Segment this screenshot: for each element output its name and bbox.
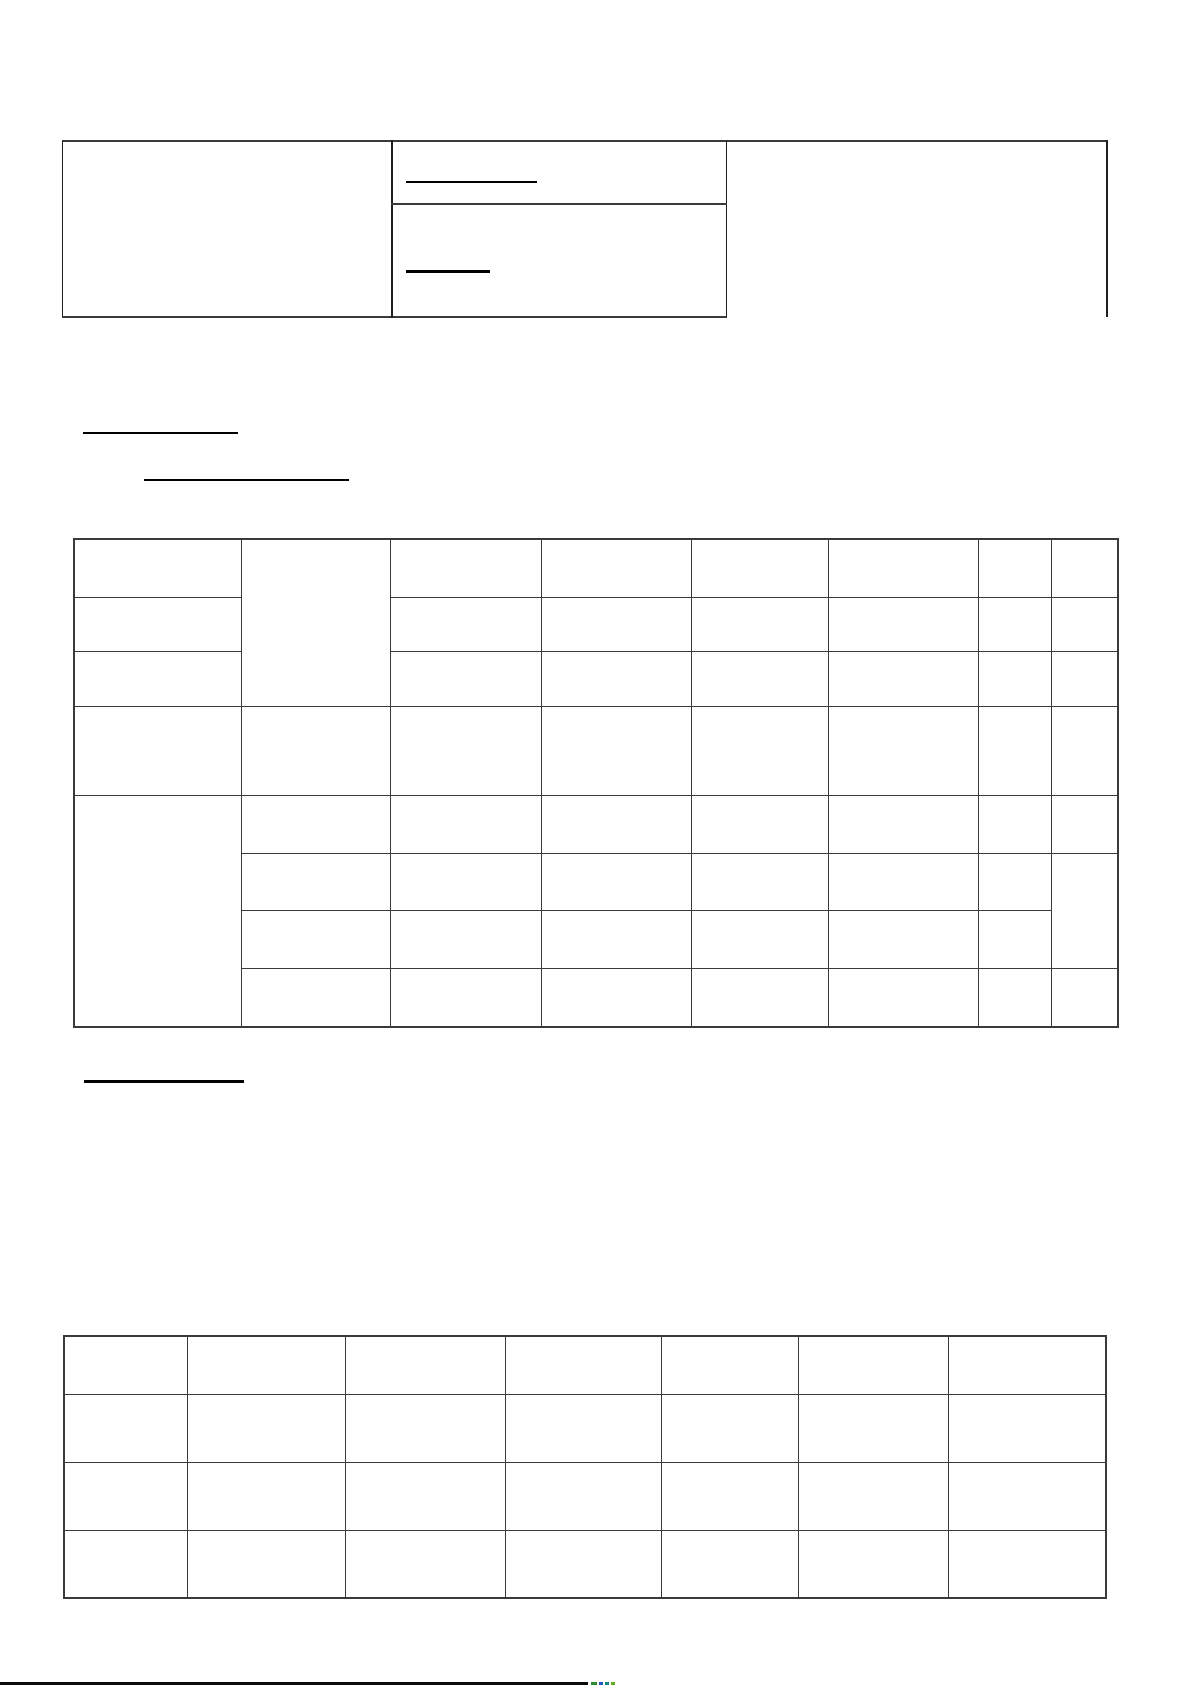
top-form-top-border-extension xyxy=(727,140,1106,142)
blank-underline xyxy=(144,479,349,481)
table-cell xyxy=(828,853,978,910)
table-cell xyxy=(390,910,541,968)
top-form-row-divider xyxy=(391,203,727,205)
table-cell xyxy=(345,1530,505,1598)
top-form-right-border xyxy=(1106,140,1108,317)
table-cell xyxy=(978,651,1051,706)
table-cell xyxy=(661,1530,798,1598)
table-cell xyxy=(978,706,1051,795)
table-cell xyxy=(541,706,691,795)
table-cell xyxy=(948,1336,1106,1394)
table-cell xyxy=(241,853,390,910)
table-cell xyxy=(390,795,541,853)
table-cell xyxy=(187,1530,345,1598)
table-cell xyxy=(74,795,241,1027)
table-cell xyxy=(541,853,691,910)
table-cell xyxy=(541,910,691,968)
table-cell xyxy=(798,1394,948,1462)
table-cell xyxy=(64,1336,187,1394)
table-cell xyxy=(978,597,1051,651)
table-cell xyxy=(64,1394,187,1462)
table-cell xyxy=(828,539,978,597)
table-cell xyxy=(978,539,1051,597)
table-cell xyxy=(74,539,241,597)
table-cell xyxy=(74,706,241,795)
table-cell xyxy=(978,910,1051,968)
table-cell xyxy=(345,1394,505,1462)
table-cell xyxy=(74,651,241,706)
table-cell xyxy=(390,651,541,706)
table-cell xyxy=(505,1394,661,1462)
table-cell xyxy=(64,1530,187,1598)
document-page xyxy=(0,0,1191,1685)
table-cell xyxy=(390,539,541,597)
table-cell xyxy=(798,1462,948,1530)
table-cell xyxy=(948,1462,1106,1530)
table-cell xyxy=(948,1530,1106,1598)
table-cell xyxy=(1051,539,1118,597)
table-cell xyxy=(691,853,828,910)
table-cell xyxy=(241,968,390,1027)
table-cell xyxy=(541,651,691,706)
top-form-column-divider xyxy=(391,140,393,318)
table-cell xyxy=(390,968,541,1027)
table-cell xyxy=(691,651,828,706)
table-cell xyxy=(241,706,390,795)
table-cell xyxy=(345,1336,505,1394)
table-cell xyxy=(828,968,978,1027)
table-cell xyxy=(1051,968,1118,1027)
table-cell xyxy=(828,706,978,795)
blank-underline xyxy=(406,181,537,183)
table-cell xyxy=(978,968,1051,1027)
table-cell xyxy=(241,910,390,968)
table-cell xyxy=(1051,597,1118,651)
table-cell xyxy=(691,910,828,968)
blank-underline xyxy=(84,1080,244,1083)
bottom-table xyxy=(63,1335,1107,1599)
table-cell xyxy=(390,597,541,651)
table-cell xyxy=(978,795,1051,853)
table-cell xyxy=(828,651,978,706)
table-cell xyxy=(1051,651,1118,706)
table-cell xyxy=(798,1530,948,1598)
table-cell xyxy=(541,539,691,597)
table-cell xyxy=(948,1394,1106,1462)
main-table xyxy=(73,538,1119,1028)
table-cell xyxy=(828,597,978,651)
table-cell xyxy=(241,795,390,853)
table-cell xyxy=(798,1336,948,1394)
table-cell xyxy=(1051,706,1118,795)
table-cell xyxy=(541,795,691,853)
table-cell xyxy=(691,539,828,597)
table-cell xyxy=(187,1394,345,1462)
table-cell xyxy=(541,597,691,651)
blank-underline xyxy=(406,270,490,273)
table-cell xyxy=(390,706,541,795)
table-cell xyxy=(978,853,1051,910)
table-cell xyxy=(241,539,390,706)
table-cell xyxy=(505,1462,661,1530)
table-cell xyxy=(661,1336,798,1394)
table-cell xyxy=(691,968,828,1027)
table-cell xyxy=(541,968,691,1027)
table-cell xyxy=(345,1462,505,1530)
table-cell xyxy=(691,597,828,651)
table-cell xyxy=(1051,853,1118,968)
top-form-table xyxy=(62,140,727,318)
table-cell xyxy=(64,1462,187,1530)
table-cell xyxy=(187,1462,345,1530)
table-cell xyxy=(187,1336,345,1394)
table-cell xyxy=(390,853,541,910)
table-cell xyxy=(74,597,241,651)
table-cell xyxy=(505,1336,661,1394)
table-cell xyxy=(1051,795,1118,853)
table-cell xyxy=(661,1462,798,1530)
table-cell xyxy=(505,1530,661,1598)
blank-underline xyxy=(83,432,238,434)
table-cell xyxy=(691,706,828,795)
table-cell xyxy=(661,1394,798,1462)
table-cell xyxy=(828,910,978,968)
table-cell xyxy=(691,795,828,853)
table-cell xyxy=(828,795,978,853)
